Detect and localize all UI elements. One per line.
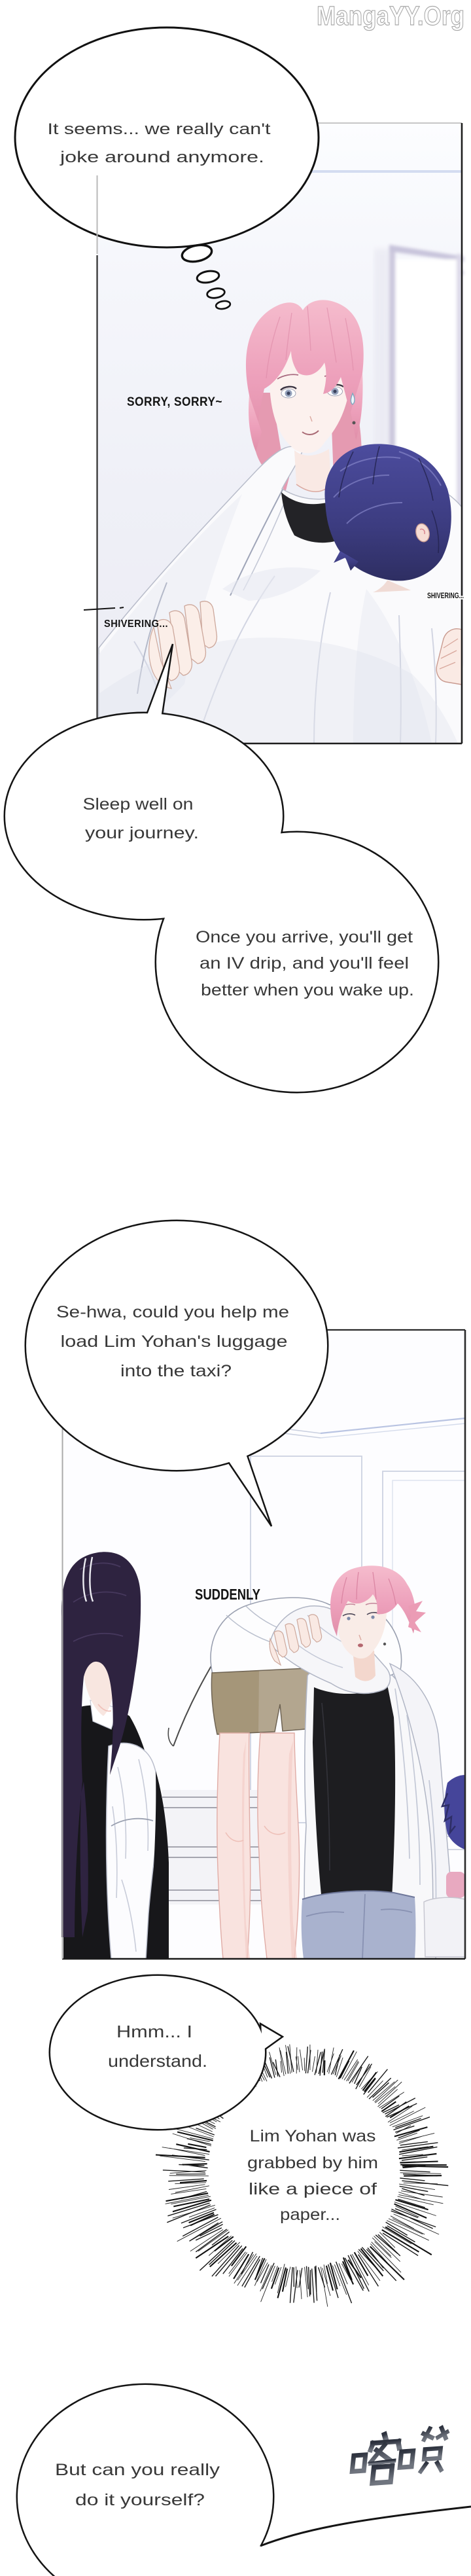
svg-text:into the taxi?: into the taxi? [120,1362,232,1380]
svg-text:understand.: understand. [108,2051,207,2071]
svg-text:It seems... we really can't: It seems... we really can't [48,120,271,138]
svg-text:Once you arrive, you'll get: Once you arrive, you'll get [196,928,413,946]
svg-text:But can you really: But can you really [55,2461,220,2479]
svg-text:better when you wake up.: better when you wake up. [201,981,414,999]
svg-text:an IV drip, and you'll feel: an IV drip, and you'll feel [200,954,409,973]
svg-text:your journey.: your journey. [85,824,199,842]
svg-text:paper...: paper... [280,2206,340,2224]
svg-text:SORRY, SORRY~: SORRY, SORRY~ [127,395,222,409]
svg-text:SUDDENLY: SUDDENLY [195,1586,260,1603]
svg-text:do it yourself?: do it yourself? [75,2491,205,2509]
svg-text:like a piece of: like a piece of [249,2180,377,2198]
svg-text:Sleep well on: Sleep well on [83,795,194,814]
svg-text:MangaYY.Org: MangaYY.Org [317,1,464,31]
svg-text:load Lim Yohan's luggage: load Lim Yohan's luggage [61,1333,288,1351]
svg-text:SHIVERING...: SHIVERING... [104,618,168,630]
svg-text:Hmm... I: Hmm... I [116,2022,192,2041]
svg-text:Lim Yohan was: Lim Yohan was [250,2127,376,2145]
svg-text:joke around anymore.: joke around anymore. [60,149,264,166]
svg-text:Se-hwa, could you help me: Se-hwa, could you help me [56,1303,289,1321]
svg-text:SHIVERING...: SHIVERING... [427,591,464,600]
svg-text:grabbed by him: grabbed by him [247,2154,378,2172]
